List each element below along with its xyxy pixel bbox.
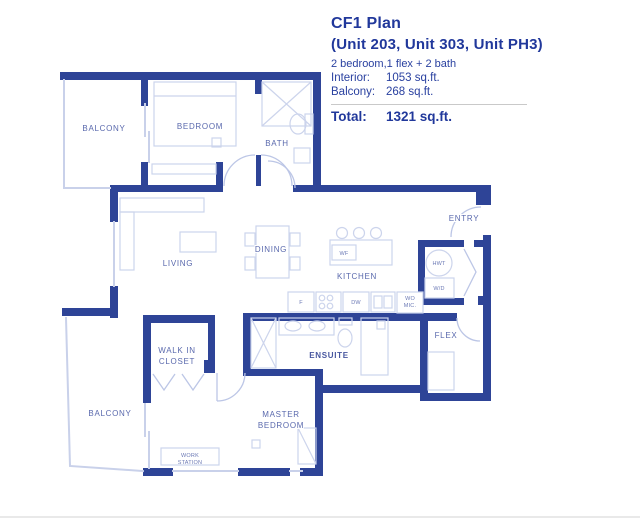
interior-value: 1053 sq.ft. (386, 71, 440, 85)
living-label: LIVING (163, 259, 193, 268)
walk-in-closet-label-2: CLOSET (159, 357, 195, 366)
plan-name: CF1 Plan (331, 14, 541, 34)
title-divider (331, 104, 527, 105)
total-label: Total: (331, 109, 386, 124)
balcony-bottom-label: BALCONY (88, 409, 131, 418)
balcony-area-row: Balcony: 268 sq.ft. (331, 85, 541, 99)
wf-label: WF (340, 251, 349, 257)
ensuite-fixtures (251, 318, 388, 375)
interior-area-row: Interior: 1053 sq.ft. (331, 71, 541, 85)
unit-numbers: (Unit 203, Unit 303, Unit PH3) (331, 34, 541, 55)
wd-label: W/D (433, 286, 444, 292)
balcony-label: Balcony: (331, 85, 386, 99)
hwt-label: HWT (432, 261, 446, 267)
kitchen-label: KITCHEN (337, 272, 377, 281)
bath-fixtures (262, 82, 313, 163)
room-configuration: 2 bedroom,1 flex + 2 bath (331, 57, 541, 71)
flex-label: FLEX (435, 331, 458, 340)
total-area-row: Total: 1321 sq.ft. (331, 109, 541, 124)
work-station-label-2: STATION (178, 460, 202, 466)
floorplan-page: BALCONY BEDROOM BATH LIVING DINING KITCH… (0, 0, 640, 523)
balcony-value: 268 sq.ft. (386, 85, 433, 99)
total-value: 1321 sq.ft. (386, 109, 452, 124)
master-bedroom-label-2: BEDROOM (258, 421, 304, 430)
dining-label: DINING (255, 245, 287, 254)
wall-oven-label-2: MIC. (404, 303, 417, 309)
balcony-top-label: BALCONY (82, 124, 125, 133)
title-block: CF1 Plan (Unit 203, Unit 303, Unit PH3) … (331, 14, 541, 124)
wall-oven-label-1: WO (405, 296, 415, 302)
bedroom-label: BEDROOM (177, 122, 223, 131)
work-station-label-1: WORK (181, 453, 199, 459)
floorplan-drawing: BALCONY BEDROOM BATH LIVING DINING KITCH… (0, 0, 640, 523)
bath-label: BATH (265, 139, 289, 148)
dishwasher-label: DW (351, 300, 361, 306)
walk-in-closet-label-1: WALK IN (158, 346, 196, 355)
master-bedroom-label-1: MASTER (262, 410, 300, 419)
interior-label: Interior: (331, 71, 386, 85)
ensuite-label: ENSUITE (309, 351, 349, 360)
fridge-label: F (299, 300, 303, 306)
flex-furniture (428, 352, 454, 390)
entry-label: ENTRY (449, 214, 479, 223)
